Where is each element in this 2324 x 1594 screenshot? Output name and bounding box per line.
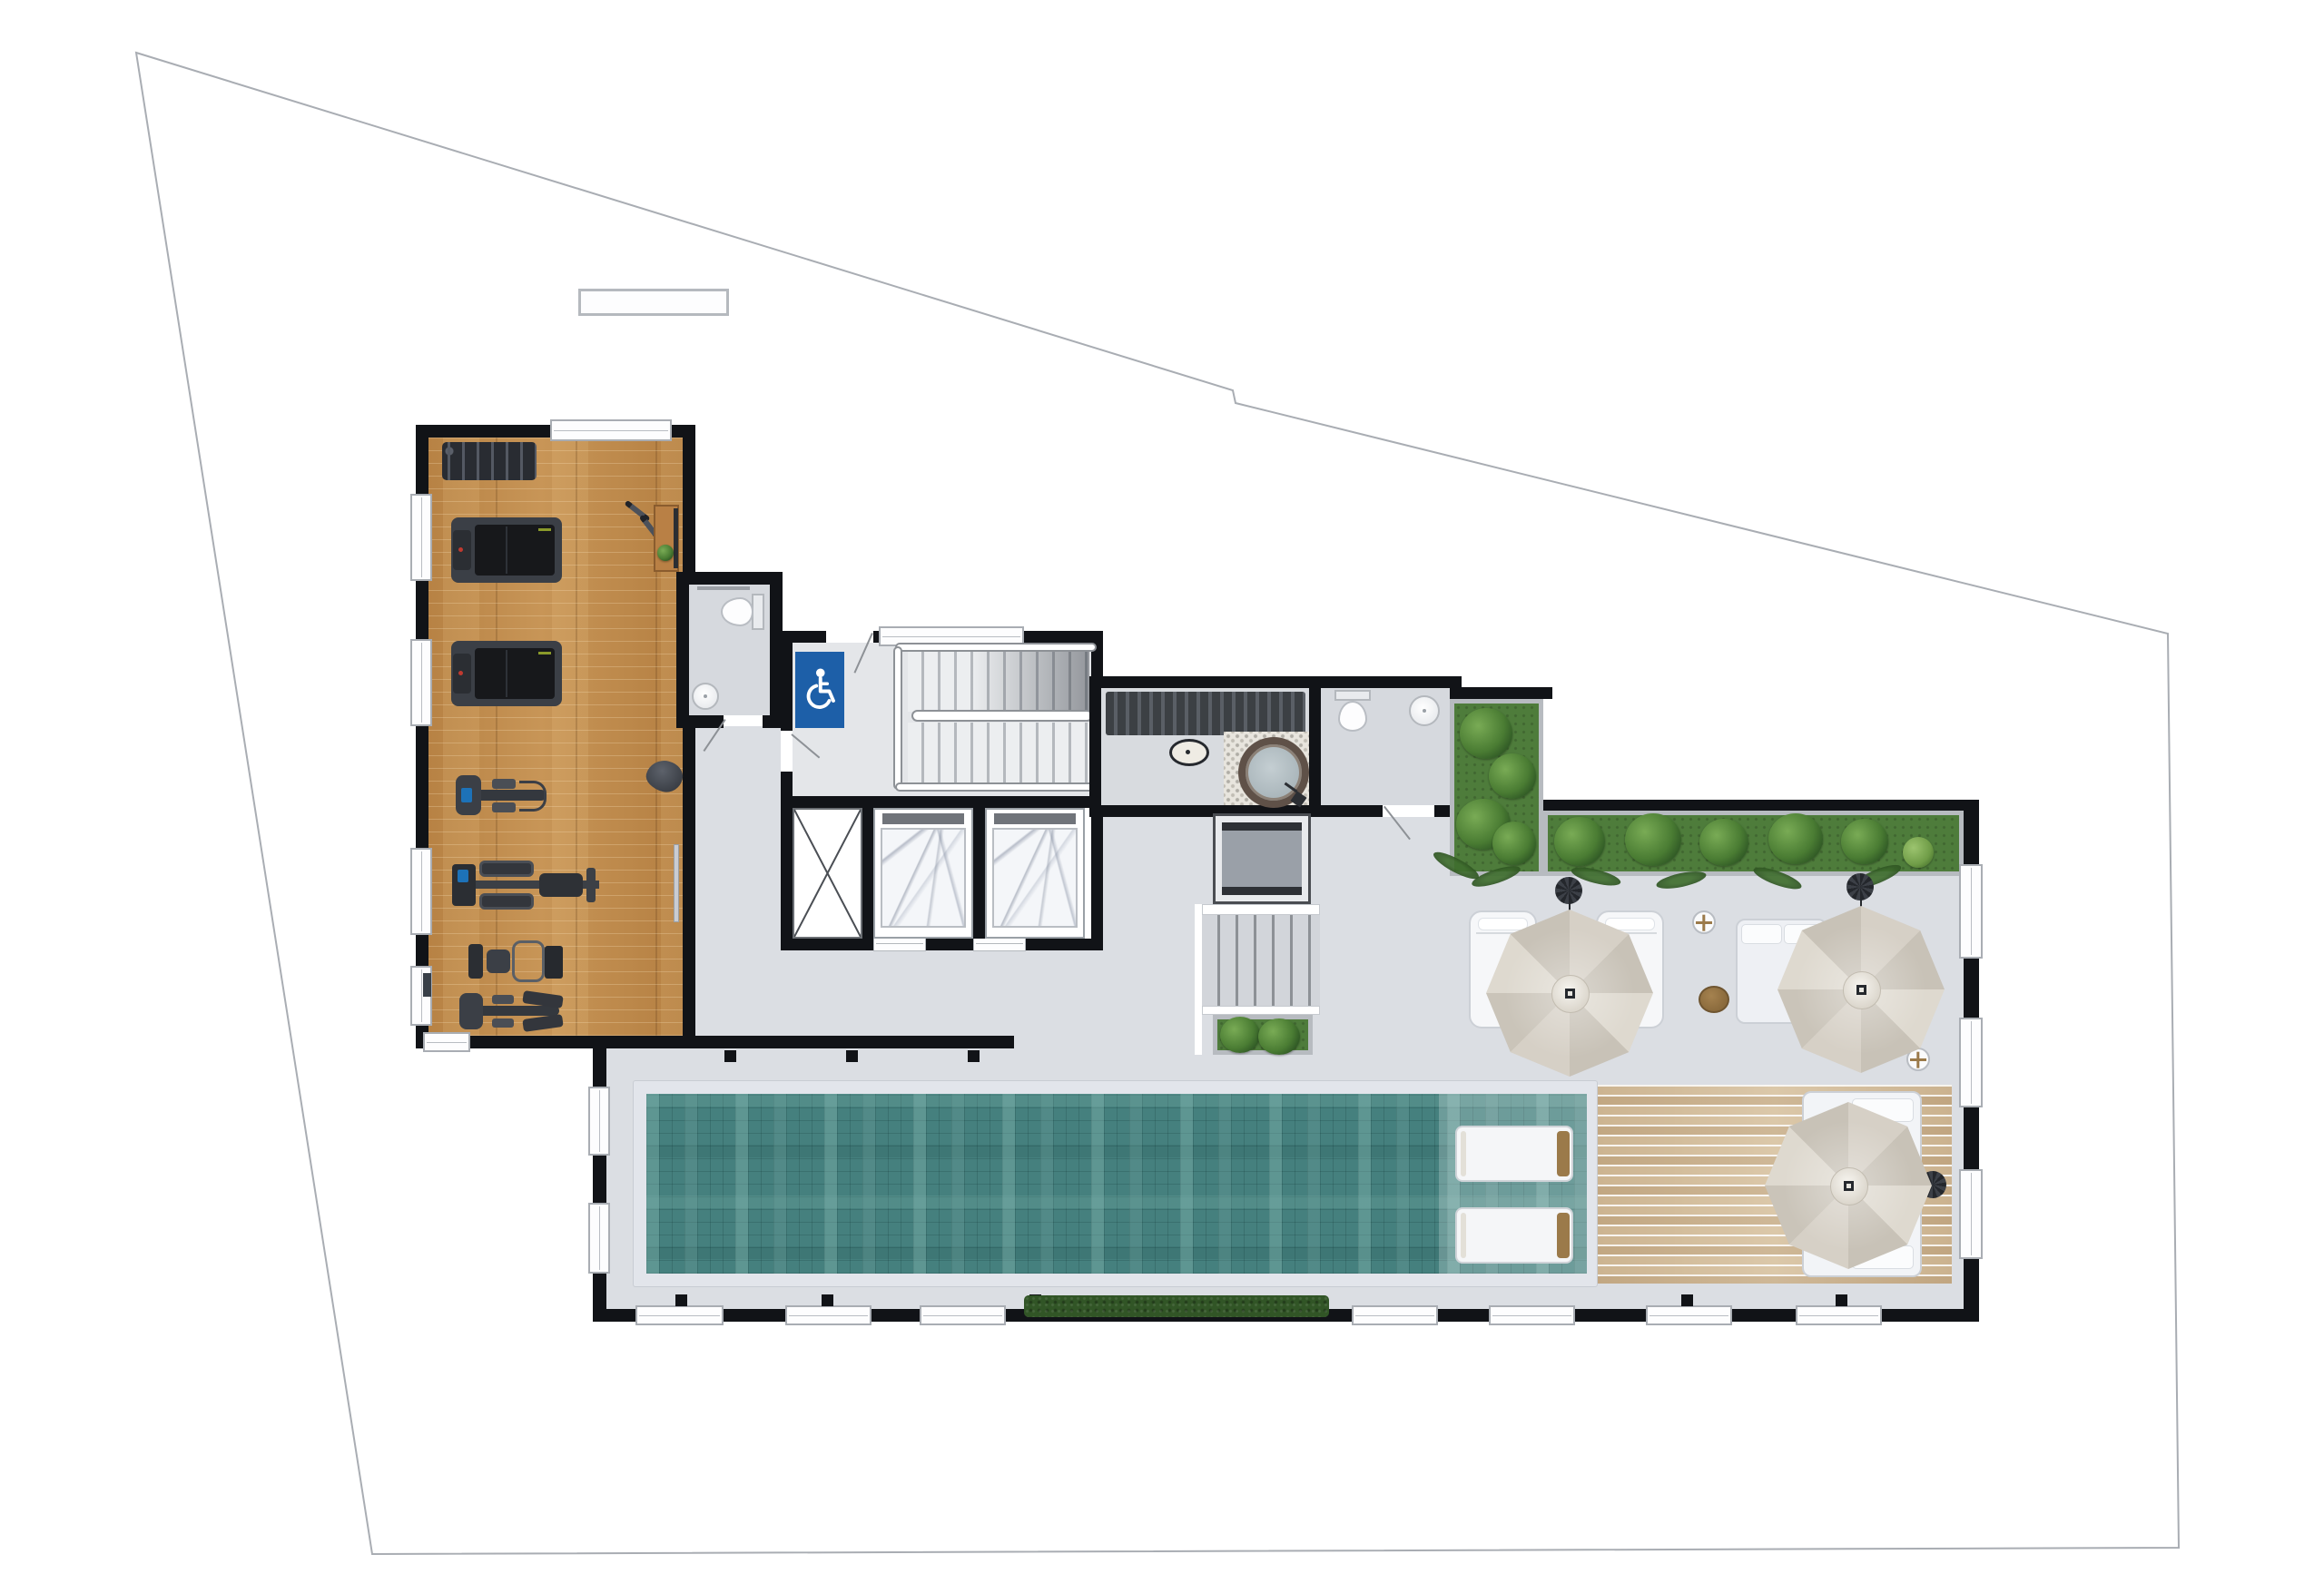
south-window-1 [635, 1305, 724, 1325]
column [822, 1294, 833, 1306]
elevator-2-marble-floor [992, 828, 1078, 928]
elev-sep-1 [862, 808, 873, 939]
bush [1768, 813, 1823, 864]
sauna-basin-drain [1186, 750, 1190, 754]
toilet-icon [721, 597, 753, 626]
toilet2-icon [1338, 701, 1367, 732]
wc1-wall-bottom-left [676, 715, 724, 728]
stair-lower-flight [908, 723, 1089, 786]
in-pool-lounger-1 [1455, 1126, 1573, 1182]
elliptical-trainer [456, 772, 547, 821]
machine-arm-top [479, 861, 534, 877]
terrace-stair-treads [1202, 915, 1320, 1006]
umbrella-1 [1486, 910, 1653, 1077]
gym-window-left-2 [410, 639, 432, 726]
elliptical-arm [522, 1014, 564, 1032]
sink-icon [692, 683, 719, 710]
elliptical-pedal [492, 1018, 514, 1028]
bush [1258, 1018, 1300, 1055]
column [1681, 1294, 1693, 1306]
cable-machine [452, 859, 599, 911]
sink2-icon [1409, 695, 1440, 726]
stair-upper-shadow [908, 648, 1089, 712]
side-table-1 [1692, 910, 1716, 934]
terrace-stair-landing-bottom [1202, 1006, 1320, 1015]
treadmill-belt-line [506, 526, 507, 574]
sauna-bench [1106, 692, 1305, 735]
bush [1554, 817, 1605, 866]
elevator-1-header [882, 813, 964, 824]
west-window-1 [588, 1087, 610, 1156]
treadmill-2 [451, 641, 562, 706]
south-window-2 [785, 1305, 871, 1325]
sauna-wall-left [1089, 676, 1101, 817]
machine-arm-bottom [479, 893, 534, 910]
stair-rail-left [893, 646, 902, 790]
press-machine [468, 937, 565, 986]
treadmill-belt [475, 525, 555, 576]
wc1-wall-left [676, 572, 689, 728]
stair-rail-bottom [895, 782, 1097, 792]
elliptical-pedal [492, 995, 514, 1004]
umbrella-pole [1856, 985, 1866, 995]
gym-window-left-3 [410, 848, 432, 935]
press-seat [487, 950, 510, 973]
south-window-3 [920, 1305, 1006, 1325]
core-wall-bottom-2 [926, 939, 973, 950]
umbrella-2-vane [1846, 873, 1874, 900]
umbrella-3 [1765, 1102, 1932, 1269]
gym-wall-right-upper [683, 425, 695, 585]
umbrella-1-vane [1555, 877, 1582, 904]
elevator-2-header [994, 813, 1076, 824]
press-weight-stack [545, 946, 563, 979]
column [675, 1294, 687, 1306]
elliptical-console [461, 788, 472, 802]
planter-wall-cap [1450, 687, 1552, 699]
umbrella-pole [1844, 1181, 1854, 1191]
column [1836, 1294, 1847, 1306]
machine-console [458, 870, 468, 882]
bush-light [1903, 837, 1934, 868]
column [846, 1050, 858, 1062]
accessibility-sign [795, 652, 844, 728]
sauna-wc2-wall-top [1089, 676, 1462, 688]
south-window-5 [1489, 1305, 1575, 1325]
core-wall-left-upper [781, 631, 793, 731]
service-shaft [793, 808, 862, 939]
sauna-wc2-divider [1309, 676, 1321, 817]
bush [1489, 753, 1536, 799]
column [968, 1050, 980, 1062]
gym-window-top [550, 419, 672, 441]
ottoman [1699, 986, 1729, 1013]
press-frame [512, 940, 545, 982]
core-wall-mid [793, 796, 1091, 808]
floor-plan-canvas [0, 0, 2324, 1594]
elev-sep-2 [973, 808, 985, 939]
south-window-6 [1646, 1305, 1732, 1325]
wc1-wall-top [676, 572, 783, 585]
terrace-floor-core [781, 950, 1103, 1048]
treadmill-stop-button [458, 671, 463, 675]
treadmill-1 [451, 517, 562, 583]
wc1-grab-bar [697, 586, 750, 590]
treadmill-led [538, 652, 551, 654]
stair-rail-mid [911, 710, 1093, 722]
elliptical-pedal [492, 779, 516, 789]
umbrella-pole [1565, 989, 1575, 999]
wc1-wall-bottom-right [763, 715, 783, 728]
bush [1699, 819, 1748, 866]
shaft-x-icon [794, 810, 861, 937]
gym-shelf-panel [674, 508, 678, 568]
bush [1625, 813, 1681, 866]
terrace-stair-landing-top [1202, 904, 1320, 915]
core-wall-left-lower [781, 772, 793, 950]
elliptical-wheel [459, 993, 483, 1029]
bush [1841, 819, 1888, 864]
south-window-7 [1796, 1305, 1882, 1325]
platform-lift [1222, 822, 1302, 895]
hedge-strip [1024, 1295, 1329, 1317]
gym-wall-right-lower [683, 715, 695, 1048]
east-window-1 [1959, 864, 1983, 959]
east-window-3 [1959, 1169, 1983, 1259]
treadmill-belt-line [506, 650, 507, 697]
elliptical-trainer-2 [459, 991, 566, 1031]
toilet-tank [752, 594, 764, 630]
machine-post [586, 868, 596, 902]
east-window-2 [1959, 1018, 1983, 1107]
bush [1220, 1017, 1260, 1053]
pillow [1741, 924, 1782, 944]
bush [1460, 708, 1512, 759]
treadmill-stop-button [458, 547, 463, 552]
elevator-1-marble-floor [881, 828, 966, 928]
gym-window-bottom [423, 1032, 470, 1052]
umbrella-2 [1777, 906, 1945, 1073]
wall-unit [423, 973, 431, 997]
treadmill-belt [475, 648, 555, 699]
south-window-4 [1352, 1305, 1438, 1325]
machine-bench [539, 873, 583, 897]
terrace-north-wall [416, 1036, 1014, 1048]
elliptical-arms [519, 781, 547, 812]
dumbbell-rack [442, 442, 537, 480]
gym-wall-top-left [416, 425, 554, 438]
stair-edge-strip [1195, 904, 1202, 1055]
in-pool-lounger-2 [1455, 1207, 1573, 1264]
gym-window-left-1 [410, 494, 432, 581]
bush [1492, 822, 1536, 865]
stair-rail-top [895, 643, 1097, 652]
wall-rail [674, 844, 679, 922]
elliptical-pedal [492, 802, 516, 812]
potted-plant [657, 545, 674, 561]
lower-level-ledge [578, 289, 729, 316]
core-wall-bottom-3 [1026, 939, 1103, 950]
treadmill-led [538, 528, 551, 531]
hall-strip-floor [695, 726, 781, 1048]
column [724, 1050, 736, 1062]
wheelchair-icon [803, 666, 836, 713]
press-backpad [468, 944, 483, 979]
toilet2-tank [1334, 690, 1371, 701]
west-window-2 [588, 1203, 610, 1274]
